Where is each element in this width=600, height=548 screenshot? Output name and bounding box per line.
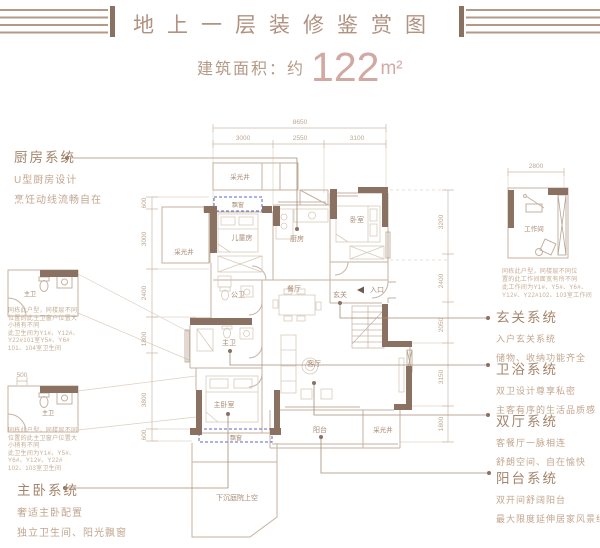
note-bath-b: 同栋此户型，同楼层不同 位置的此主卫窗户位置大 小稍有不同 此卫生间为Y1#、Y… bbox=[8, 428, 103, 473]
dim-label: 2800 bbox=[529, 163, 544, 170]
dim-label: 2400 bbox=[438, 273, 445, 288]
dim-label: 3150 bbox=[438, 369, 445, 384]
annotation-master-line: 奢适主卧配置 bbox=[17, 504, 127, 519]
note-line: 101、104室卫生间 bbox=[8, 346, 103, 354]
walls bbox=[40, 187, 568, 435]
note-line: 置的此工作间面宽有所不同 bbox=[502, 276, 600, 284]
note-line: 同栋此户型，同楼层不同 bbox=[8, 428, 103, 436]
room-label: 餐厅 bbox=[287, 284, 301, 293]
annotation-title: 阳台系统 bbox=[496, 467, 600, 487]
dim-label: 2050 bbox=[438, 317, 445, 332]
annotation-master: 主卧系统 奢适主卧配置 独立卫生间、阳光飘窗 bbox=[17, 479, 127, 539]
dim-label: 1800 bbox=[438, 416, 445, 431]
room-label: 工作间 bbox=[524, 224, 544, 233]
annotation-line: 双卫设计尊享私密 bbox=[496, 384, 596, 397]
annotation-entry-system: 玄关系统 入户玄关系统 储物、收纳功能齐全 bbox=[496, 306, 586, 364]
note-line: 同栋此户型，同楼层不同 bbox=[8, 308, 103, 316]
dim-label: 3100 bbox=[350, 135, 365, 142]
annotation-kitchen: 厨房系统 U型厨房设计 烹饪动线流畅自在 bbox=[14, 146, 102, 206]
floorplan-page: 地上一层装修鉴赏图 建筑面积：约 122 m² bbox=[0, 0, 600, 548]
room-label: 入口 bbox=[370, 286, 384, 294]
annotation-balcony-system: 阳台系统 双开间舒阔阳台 最大限度延伸居家风景线 bbox=[496, 467, 600, 525]
room-label: 厨房 bbox=[290, 234, 304, 243]
room-label: 采光井 bbox=[174, 247, 194, 256]
note-line: 位置的此主卫窗户位置大 bbox=[8, 316, 103, 324]
annotation-kitchen-line: 烹饪动线流畅自在 bbox=[14, 191, 102, 206]
note-line: Y22#101室Y5#、Y6# bbox=[8, 338, 103, 346]
room-label: 主卫 bbox=[42, 409, 54, 417]
annotation-hall-system: 双厅系统 客餐厅一脉相连 舒朗空间、自在愉快 bbox=[496, 410, 586, 468]
note-line: 此工作间为Y1#、Y5#、Y6#、 bbox=[502, 284, 600, 292]
note-line: 此卫生间为Y1#、Y5#、 bbox=[8, 451, 103, 459]
note-line: 小稍有不同 bbox=[8, 323, 103, 331]
room-label: 客厅 bbox=[307, 359, 321, 368]
entry-arrow bbox=[357, 287, 364, 294]
note-line: 102、103室卫生间 bbox=[8, 466, 103, 474]
annotation-line: 入户玄关系统 bbox=[496, 332, 586, 345]
annotation-line: 客餐厅一脉相连 bbox=[496, 436, 586, 449]
room-label: 公卫 bbox=[231, 291, 245, 299]
note-line: Y6#、Y12#、Y22# bbox=[8, 458, 103, 466]
annotation-kitchen-title: 厨房系统 bbox=[14, 146, 102, 166]
annotation-line: 最大限度延伸居家风景线 bbox=[496, 512, 600, 525]
room-label: 玄关 bbox=[333, 290, 347, 299]
annotation-master-title: 主卧系统 bbox=[17, 479, 127, 499]
note-line: 位置的此主卫窗户位置大 bbox=[8, 436, 103, 444]
dim-label: 8650 bbox=[293, 119, 308, 126]
annotation-title: 玄关系统 bbox=[496, 306, 586, 326]
room-label: 主卫 bbox=[24, 290, 36, 298]
room-label: 飘窗 bbox=[230, 434, 242, 442]
dim-label: 600 bbox=[141, 197, 148, 208]
note-line: 同栋此户型，同楼层不同位 bbox=[502, 268, 600, 276]
annotation-kitchen-line: U型厨房设计 bbox=[14, 171, 102, 186]
dim-label: 500 bbox=[17, 372, 28, 379]
dim-label: 600 bbox=[141, 429, 148, 440]
room-label: 阳台 bbox=[313, 425, 327, 434]
stairs bbox=[352, 306, 384, 348]
room-label: 飘窗 bbox=[232, 201, 244, 209]
note-line: Y12#、Y22#102、103室工作间 bbox=[502, 292, 600, 300]
annotation-title: 双厅系统 bbox=[496, 410, 586, 430]
dim-label: 3000 bbox=[236, 135, 251, 142]
dim-label: 3200 bbox=[438, 214, 445, 229]
note-line: 小稍有不同 bbox=[8, 443, 103, 451]
dim-label: 3800 bbox=[141, 392, 148, 407]
room-label: 卧室 bbox=[350, 215, 364, 224]
dim-label: 1800 bbox=[141, 331, 148, 346]
annotation-bath-system: 卫浴系统 双卫设计尊享私密 主客有序的生活品质感 bbox=[496, 358, 596, 416]
note-bath-a: 同栋此户型，同楼层不同 位置的此主卫窗户位置大 小稍有不同 此卫生间为Y1#、Y… bbox=[8, 308, 103, 353]
room-label: 下沉庭院上空 bbox=[216, 493, 258, 502]
dim-label: 2400 bbox=[141, 285, 148, 300]
annotation-master-line: 独立卫生间、阳光飘窗 bbox=[17, 524, 127, 539]
room-label: 儿童房 bbox=[232, 233, 253, 242]
dim-label: 3000 bbox=[141, 231, 148, 246]
dim-label: 2550 bbox=[293, 135, 308, 142]
annotation-title: 卫浴系统 bbox=[496, 358, 596, 378]
room-label: 主卫 bbox=[222, 338, 236, 347]
room-label: 采光井 bbox=[230, 172, 250, 181]
annotation-line: 双开间舒阔阳台 bbox=[496, 493, 600, 506]
room-label: 采光井 bbox=[373, 425, 393, 434]
note-line: 此卫生间为Y1#、Y12#、 bbox=[8, 331, 103, 339]
note-workroom: 同栋此户型，同楼层不同位 置的此工作间面宽有所不同 此工作间为Y1#、Y5#、Y… bbox=[502, 268, 600, 300]
room-label: 主卧室 bbox=[214, 400, 235, 409]
